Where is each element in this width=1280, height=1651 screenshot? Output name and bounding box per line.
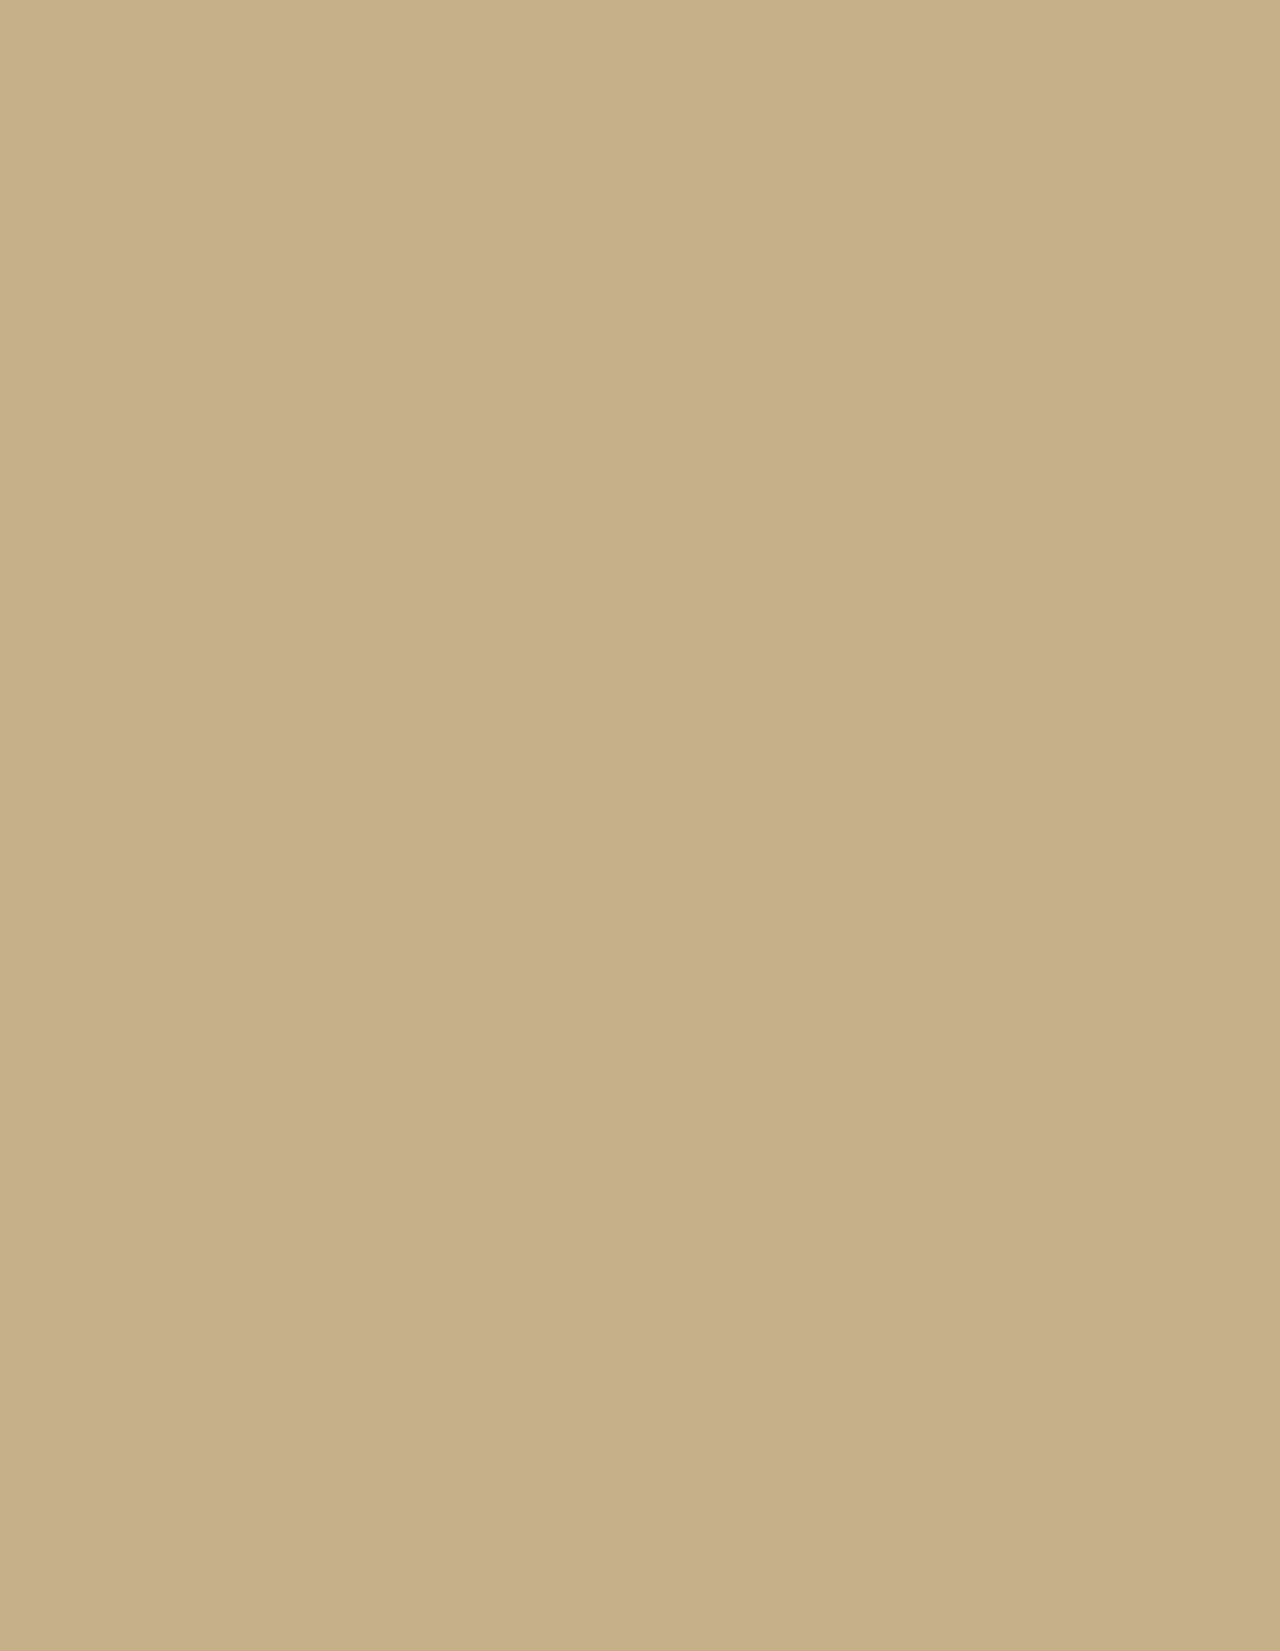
annotated-satellite-graphic: [0, 0, 1280, 1651]
satellite-scene: [0, 0, 300, 150]
